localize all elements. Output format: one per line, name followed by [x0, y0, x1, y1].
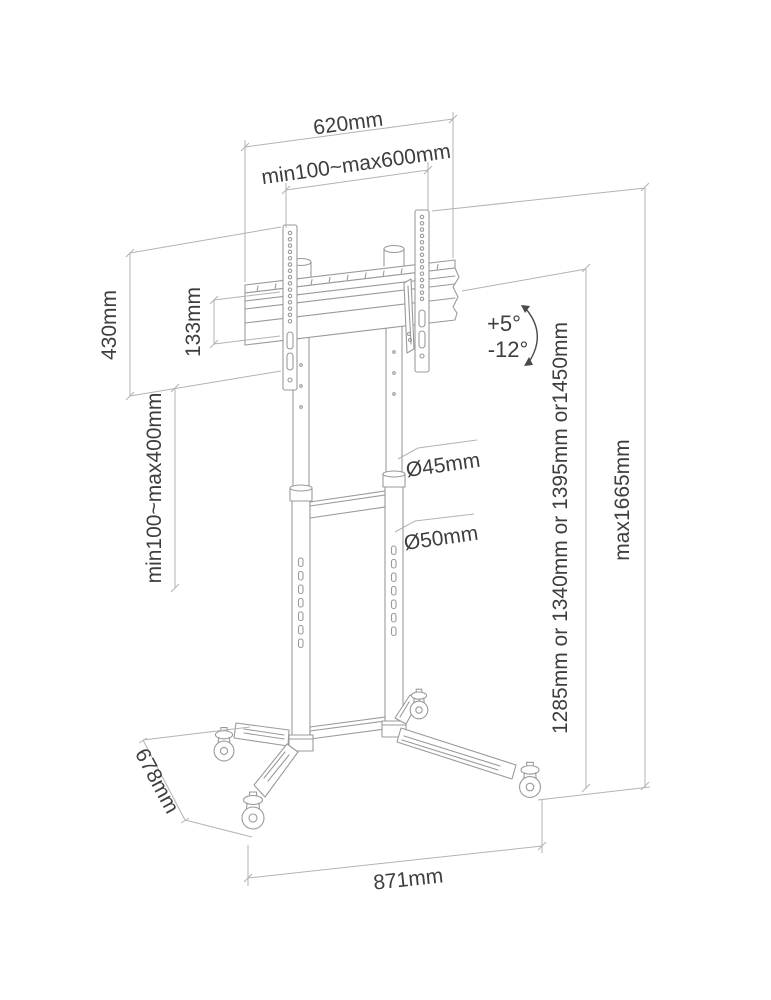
dim-lower-pole-diameter: Ø50mm — [395, 514, 480, 555]
front-right-leg — [397, 728, 516, 779]
right-lower-pole — [385, 487, 403, 722]
dim-max-height: max1665mm — [432, 183, 650, 800]
dim-tilt-angle: +5° -12° — [487, 305, 537, 366]
dim-vesa-height: min100~max400mm — [143, 384, 179, 592]
dim-base-depth: 678mm — [130, 727, 252, 837]
stand-drawing — [214, 210, 540, 829]
right-vesa-bracket — [404, 210, 429, 372]
left-vesa-bracket — [283, 225, 297, 390]
label-max-height: max1665mm — [611, 439, 634, 560]
label-vesa-width: min100~max600mm — [260, 140, 452, 189]
label-tilt-up: +5° — [487, 311, 521, 336]
upper-poles — [293, 318, 402, 487]
lower-poles — [292, 487, 403, 736]
label-pole-heights: 1285mm or 1340mm or 1395mm or1450mm — [549, 322, 572, 734]
upper-pole-holes — [300, 351, 396, 409]
left-lower-pole — [292, 501, 310, 736]
bottom-crossbar — [310, 717, 385, 739]
left-collar-top — [290, 485, 312, 491]
label-rail-height: 133mm — [182, 287, 205, 357]
base-legs — [234, 695, 516, 797]
diagram-canvas: 620mm min100~max600mm 430mm 133mm min100… — [0, 0, 771, 1000]
tv-stand-dimension-drawing: 620mm min100~max600mm 430mm 133mm min100… — [0, 0, 771, 1000]
label-vesa-height: min100~max400mm — [143, 393, 166, 584]
dim-base-width: 871mm — [244, 799, 546, 895]
label-base-depth: 678mm — [130, 745, 183, 818]
pole-adjustment-slots — [299, 546, 397, 648]
caster — [520, 762, 541, 797]
dim-upper-pole-diameter: Ø45mm — [398, 440, 482, 482]
label-top-width: 620mm — [312, 108, 384, 140]
label-bracket-height: 430mm — [98, 290, 121, 360]
caster — [410, 689, 428, 719]
label-upper-pole-diameter: Ø45mm — [404, 449, 481, 482]
right-collar-top — [383, 471, 405, 477]
caster — [214, 728, 234, 761]
label-lower-pole-diameter: Ø50mm — [402, 522, 479, 555]
caster — [242, 792, 264, 829]
label-tilt-down: -12° — [488, 337, 529, 362]
right-pole-cap — [384, 246, 404, 253]
label-base-width: 871mm — [372, 864, 444, 894]
